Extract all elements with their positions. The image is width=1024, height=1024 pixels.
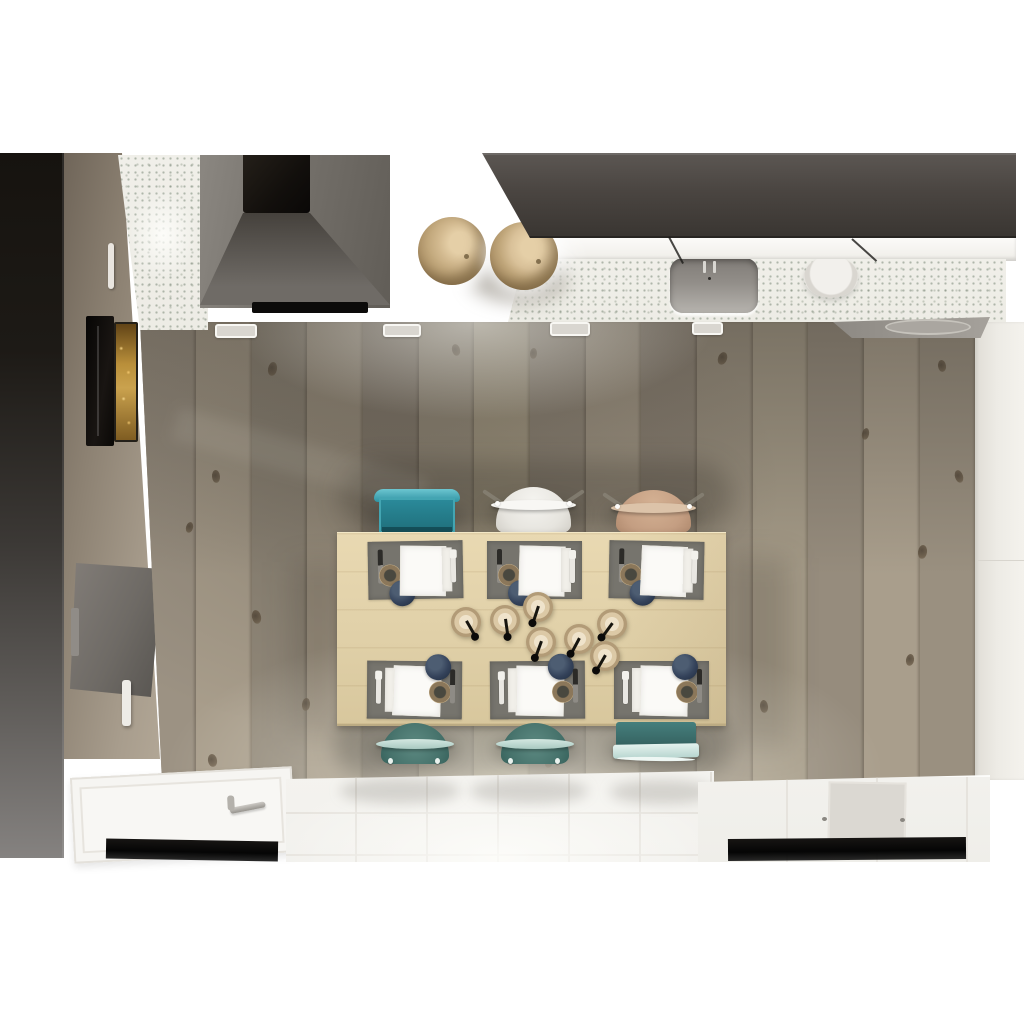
chair-foot — [388, 758, 393, 764]
chair-reflection — [470, 778, 588, 804]
baseboard-shadow-left — [106, 839, 278, 862]
chair-foot — [508, 758, 513, 764]
drain-dot — [900, 818, 905, 822]
chair-teal-dome — [376, 722, 454, 764]
chair-armrest-band — [496, 739, 574, 749]
chair-teal-bench — [612, 722, 700, 766]
dining-chairs-bottom — [0, 0, 1024, 1024]
chair-foot — [435, 758, 440, 764]
door-handle-base — [227, 795, 235, 810]
baseboard-shadow-right — [728, 837, 966, 861]
chair-teal-dome — [496, 722, 574, 764]
drain-dot — [822, 817, 827, 821]
chair-reflection — [340, 778, 460, 804]
kitchen-top-view-render — [0, 0, 1024, 1024]
chair-armrest-band — [376, 739, 454, 749]
tiled-floor-center — [286, 770, 714, 862]
chair-foot — [555, 758, 560, 764]
bench-edge-highlight — [617, 756, 695, 761]
